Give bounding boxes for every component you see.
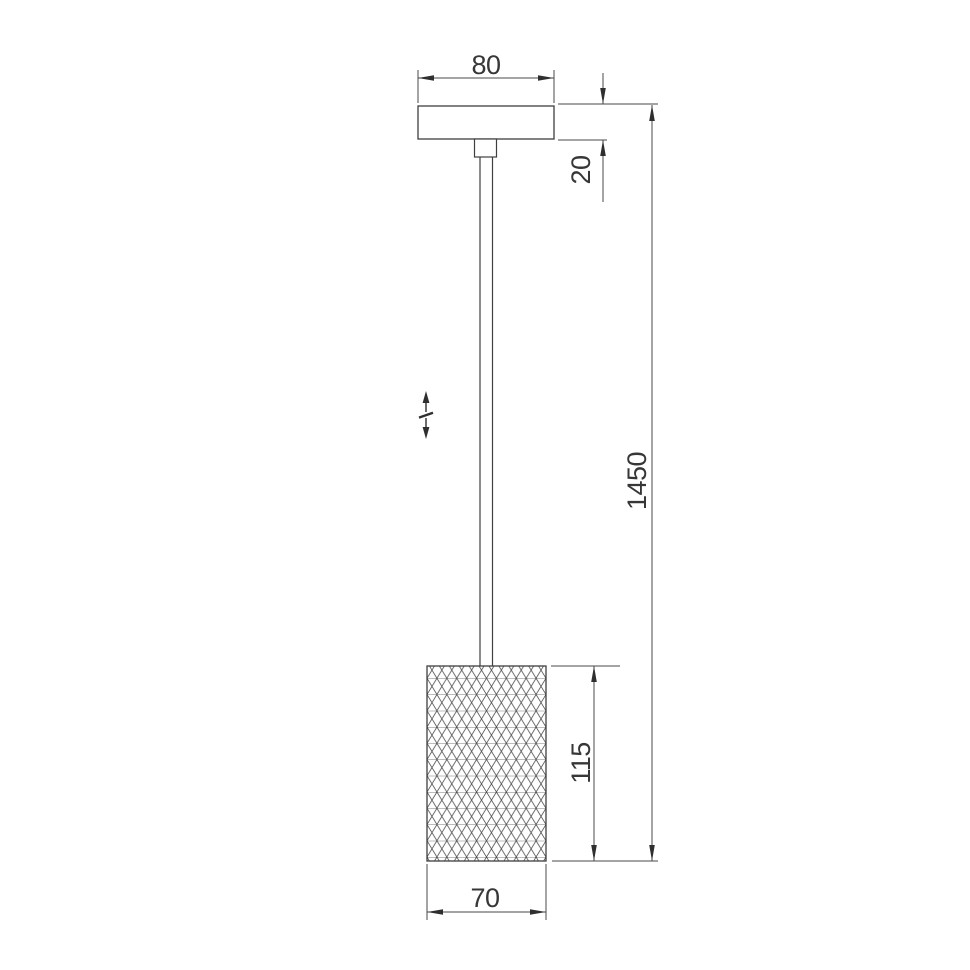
dim-overall-drop: 1450	[622, 105, 655, 861]
dim-shade-height: 115	[551, 666, 658, 861]
lamp-shade-outline	[427, 666, 546, 861]
dim-shade-height-label: 115	[566, 742, 596, 784]
technical-drawing-canvas: 80 20 1450 115	[0, 0, 970, 970]
dim-canopy-width: 80	[418, 50, 554, 103]
lamp-shade	[427, 666, 546, 861]
dim-shade-width-label: 70	[470, 883, 499, 913]
ceiling-canopy-outline	[418, 106, 554, 139]
height-adjustment-double-arrow-icon	[419, 391, 433, 439]
rod-connector	[475, 139, 497, 157]
dim-canopy-thickness: 20	[558, 73, 658, 202]
dim-canopy-width-label: 80	[471, 50, 500, 80]
ceiling-canopy	[418, 106, 554, 139]
rod-connector-outline	[475, 139, 497, 157]
dim-overall-drop-label: 1450	[622, 452, 652, 510]
drawing-page: 80 20 1450 115	[0, 0, 970, 970]
dim-canopy-thickness-label: 20	[566, 155, 596, 184]
dim-shade-width: 70	[427, 864, 546, 920]
suspension-rod	[480, 157, 493, 666]
